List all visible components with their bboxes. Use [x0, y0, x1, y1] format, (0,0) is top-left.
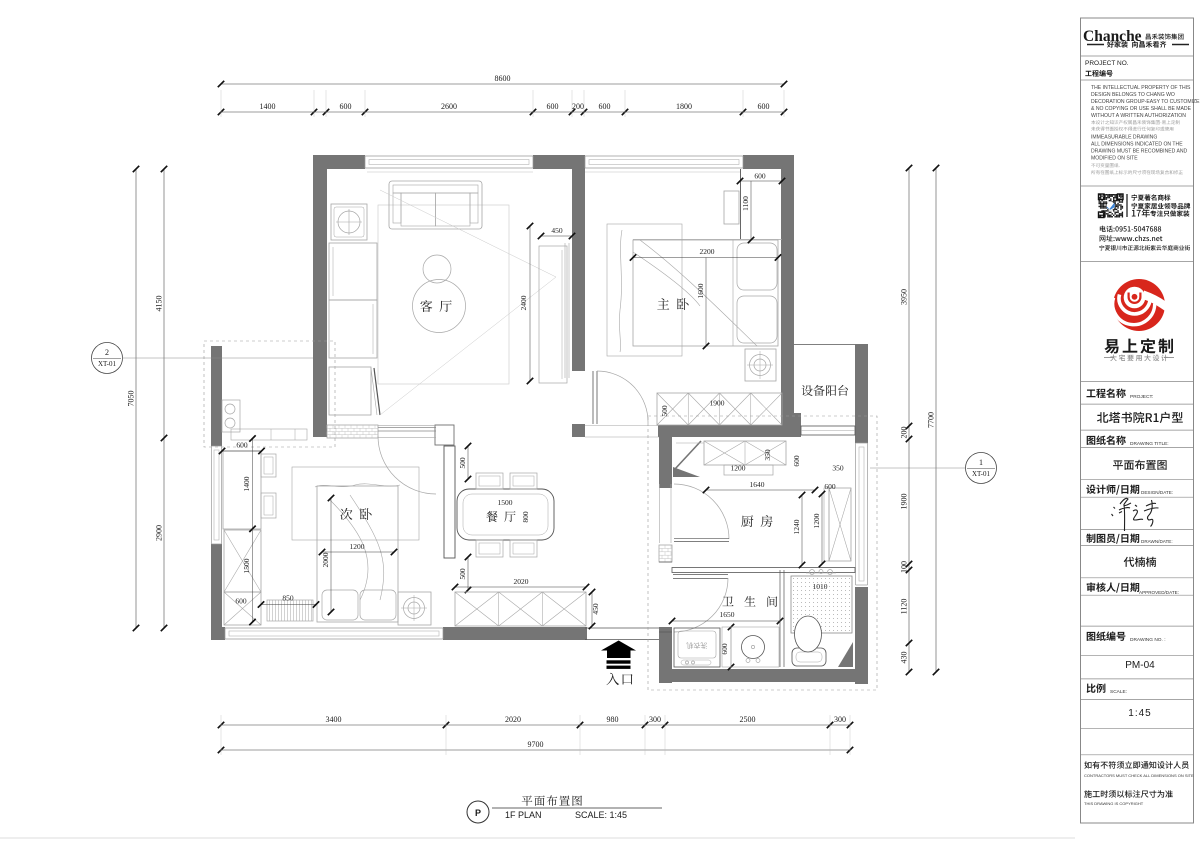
svg-text:2900: 2900 — [155, 525, 164, 541]
svg-text:1100: 1100 — [741, 196, 750, 211]
svg-text:600: 600 — [758, 102, 770, 111]
svg-text:450: 450 — [591, 603, 600, 615]
svg-text:IMMEASURABLE DRAWING: IMMEASURABLE DRAWING — [1091, 135, 1157, 141]
svg-text:980: 980 — [607, 715, 619, 724]
svg-text:350: 350 — [832, 464, 844, 473]
svg-text:PM-04: PM-04 — [1125, 660, 1155, 671]
svg-text:1640: 1640 — [750, 480, 765, 489]
svg-text:2600: 2600 — [441, 102, 457, 111]
svg-text:1200: 1200 — [812, 513, 821, 528]
svg-text:PROJECT:: PROJECT: — [1130, 394, 1153, 400]
svg-text:2400: 2400 — [519, 295, 528, 310]
svg-text:9700: 9700 — [528, 740, 544, 749]
svg-text:DRAWING NO. :: DRAWING NO. : — [1130, 637, 1166, 643]
svg-text:DESIGN/DATE:: DESIGN/DATE: — [1141, 490, 1173, 495]
svg-text:600: 600 — [599, 102, 611, 111]
svg-text:1200: 1200 — [731, 464, 746, 473]
svg-text:2020: 2020 — [505, 715, 521, 724]
svg-text:600: 600 — [792, 455, 801, 467]
svg-text:1: 1 — [979, 458, 983, 467]
svg-text:WITHOUT A WRITTEN AUTHORIZATIO: WITHOUT A WRITTEN AUTHORIZATION — [1091, 113, 1186, 119]
svg-text:300: 300 — [649, 715, 661, 724]
svg-text:DRAWING TITLE:: DRAWING TITLE: — [1130, 441, 1169, 447]
svg-text:1400: 1400 — [242, 476, 251, 491]
svg-text:600: 600 — [547, 102, 559, 111]
svg-text:1900: 1900 — [900, 494, 909, 510]
svg-text:350: 350 — [763, 449, 772, 461]
svg-text:600: 600 — [720, 643, 729, 655]
svg-text:1650: 1650 — [720, 610, 735, 619]
svg-text:1800: 1800 — [676, 102, 692, 111]
svg-text:600: 600 — [340, 102, 352, 111]
svg-text:CONTRACTORS MUST CHECK ALL: CONTRACTORS MUST CHECK ALL DIMENSIONS ON… — [1084, 773, 1194, 778]
svg-text:7050: 7050 — [127, 391, 136, 407]
svg-text:APPROVED/DATE:: APPROVED/DATE: — [1139, 590, 1179, 595]
svg-text:430: 430 — [900, 652, 909, 664]
svg-text:4150: 4150 — [155, 296, 164, 312]
svg-text:7700: 7700 — [927, 412, 936, 428]
svg-text:DRAWING MUST BE RECOMBINED AND: DRAWING MUST BE RECOMBINED AND — [1091, 149, 1188, 155]
svg-text:450: 450 — [551, 226, 563, 235]
svg-text:1900: 1900 — [710, 399, 725, 408]
svg-text:500: 500 — [458, 457, 467, 469]
svg-text:800: 800 — [521, 511, 530, 523]
svg-text:SCALE: 1:45: SCALE: 1:45 — [575, 810, 627, 820]
svg-text:3950: 3950 — [900, 289, 909, 305]
svg-text:100: 100 — [900, 561, 909, 573]
svg-text:1120: 1120 — [900, 599, 909, 615]
svg-text:2000: 2000 — [321, 552, 330, 567]
svg-text:600: 600 — [824, 482, 836, 491]
svg-text:1400: 1400 — [260, 102, 276, 111]
svg-text:DECORATION GROUP-EASY TO CUSTO: DECORATION GROUP-EASY TO CUSTOMIZE — [1091, 99, 1200, 105]
svg-text:P: P — [475, 808, 481, 818]
svg-text:SCALE:: SCALE: — [1110, 689, 1127, 695]
svg-text:THIS DRAWING IS COPYRIGHT: THIS DRAWING IS COPYRIGHT — [1084, 801, 1144, 806]
svg-text:PROJECT NO.: PROJECT NO. — [1085, 60, 1129, 67]
svg-text:DESIGN BELONGS TO CHANG WO: DESIGN BELONGS TO CHANG WO — [1091, 92, 1175, 98]
svg-text:1010: 1010 — [813, 582, 828, 591]
svg-text:1600: 1600 — [696, 283, 705, 298]
svg-text:DRAWN/DATE:: DRAWN/DATE: — [1141, 539, 1173, 544]
svg-text:500: 500 — [458, 568, 467, 580]
svg-text:300: 300 — [834, 715, 846, 724]
svg-text:1F PLAN: 1F PLAN — [505, 810, 542, 820]
svg-text:3400: 3400 — [326, 715, 342, 724]
svg-text:1200: 1200 — [350, 542, 365, 551]
svg-text:THE INTELLECTUAL PROPERTY OF T: THE INTELLECTUAL PROPERTY OF THIS — [1091, 85, 1191, 91]
svg-text:600: 600 — [235, 597, 247, 606]
svg-text:600: 600 — [236, 441, 248, 450]
svg-text:1500: 1500 — [242, 558, 251, 573]
svg-text:850: 850 — [282, 594, 294, 603]
svg-text:200: 200 — [900, 427, 909, 439]
svg-text:MODIFIED ON SITE: MODIFIED ON SITE — [1091, 156, 1138, 162]
svg-text:2200: 2200 — [700, 247, 715, 256]
svg-text:1:45: 1:45 — [1128, 708, 1151, 719]
svg-text:600: 600 — [754, 172, 766, 181]
svg-text:2020: 2020 — [514, 577, 529, 586]
svg-text:200: 200 — [572, 102, 584, 111]
svg-text:XT-01: XT-01 — [98, 360, 117, 368]
svg-text:2500: 2500 — [740, 715, 756, 724]
svg-text:2: 2 — [105, 348, 109, 357]
svg-text:8600: 8600 — [495, 74, 511, 83]
svg-text:1500: 1500 — [498, 498, 513, 507]
svg-text:ALL DIMENSIONS INDICATED ON T: ALL DIMENSIONS INDICATED ON THE — [1091, 142, 1183, 148]
svg-text:& NO COPYING OR USE SHALL BE M: & NO COPYING OR USE SHALL BE MADE — [1091, 106, 1192, 112]
svg-text:XT-01: XT-01 — [972, 470, 991, 478]
svg-text:500: 500 — [660, 405, 669, 417]
svg-text:1240: 1240 — [792, 519, 801, 534]
